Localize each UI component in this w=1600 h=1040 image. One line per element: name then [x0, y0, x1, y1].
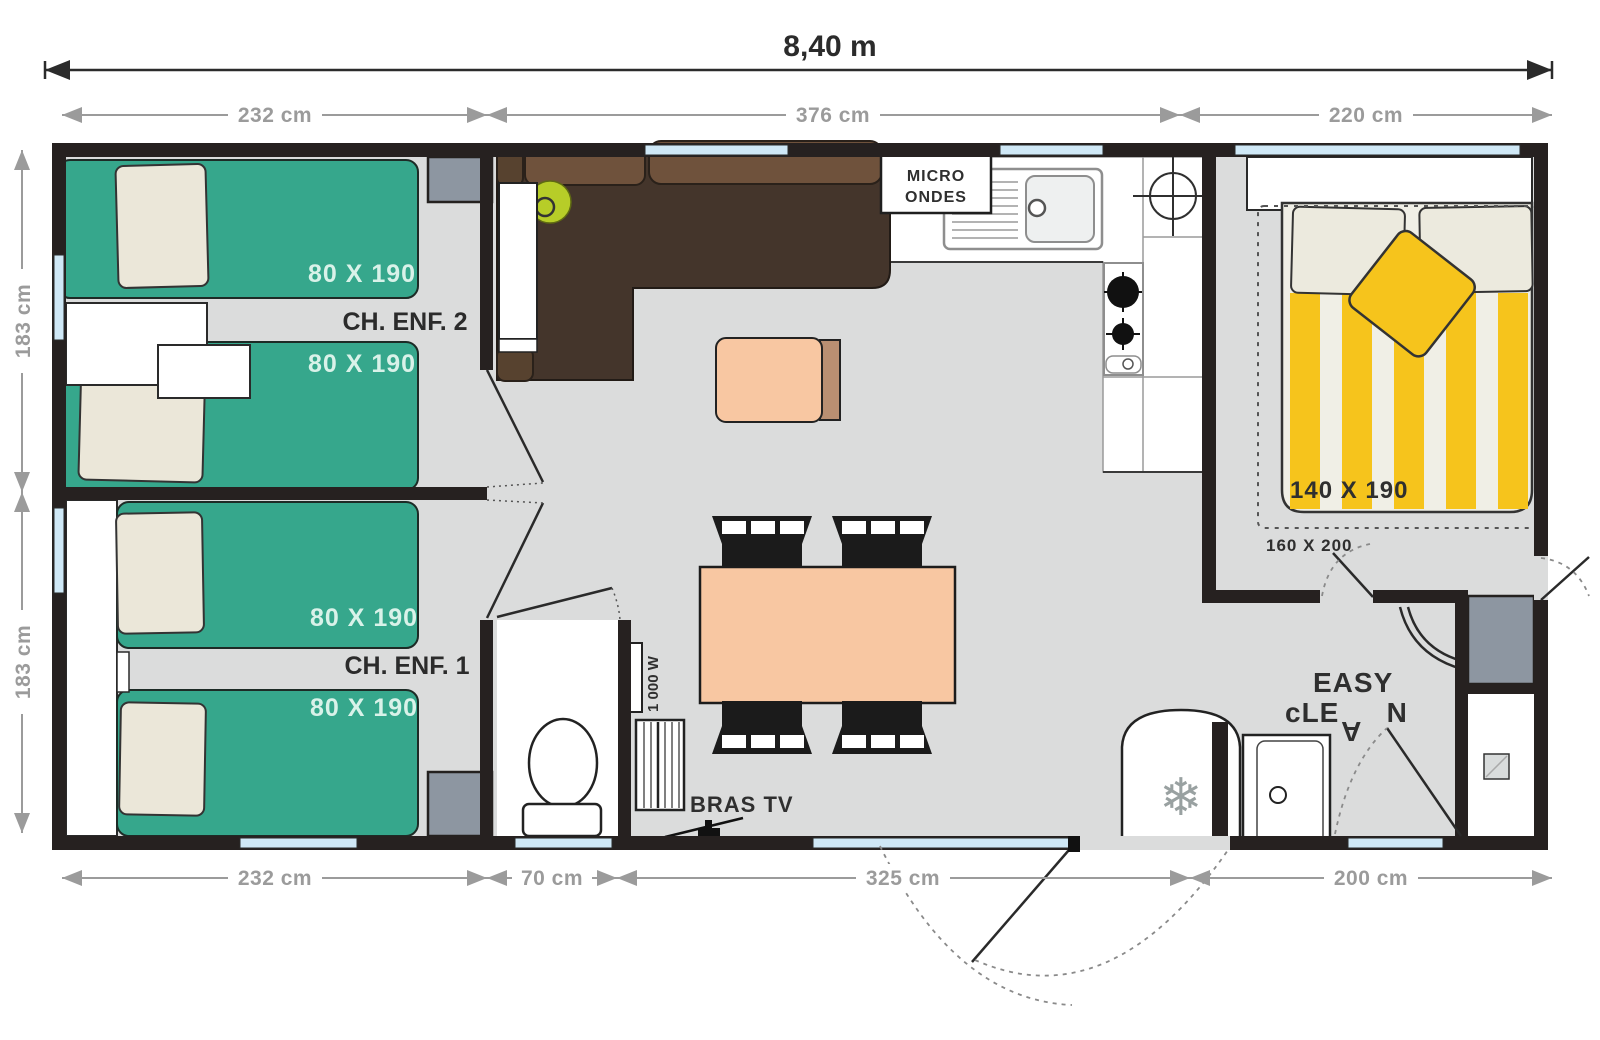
- wardrobe-edge: [1468, 684, 1534, 694]
- dimensions-left: 183 cm 183 cm: [7, 150, 37, 833]
- dim-top-2: 376 cm: [796, 104, 870, 127]
- bed-pillow: [116, 512, 204, 633]
- closet-strip: [66, 500, 117, 836]
- bed-size-label: 80 X 190: [310, 604, 418, 632]
- wc-room: [523, 719, 601, 836]
- dim-bottom-3: 325 cm: [866, 867, 940, 890]
- dimensions-bottom: 232 cm 70 cm 325 cm 200 cm: [62, 864, 1552, 892]
- sofa-armrest: [497, 348, 533, 381]
- dim-bottom-2: 70 cm: [521, 867, 583, 890]
- window: [1000, 145, 1103, 155]
- bed-pillow: [115, 164, 208, 288]
- room-label-child1: CH. ENF. 1: [344, 652, 469, 680]
- burner-large: [1107, 276, 1139, 308]
- dim-bottom-4: 200 cm: [1334, 867, 1408, 890]
- dining-table: [700, 567, 955, 703]
- dim-left-1: 183 cm: [12, 284, 35, 358]
- snowflake-icon: ❄: [1159, 768, 1203, 828]
- nightstand: [158, 345, 250, 398]
- window: [645, 145, 788, 155]
- microwave-label-box: MICRO ONDES: [881, 153, 991, 213]
- logo-line1: EASY: [1313, 667, 1393, 698]
- dimensions-top: 232 cm 376 cm 220 cm: [62, 101, 1552, 129]
- dim-bottom-1: 232 cm: [238, 867, 312, 890]
- dim-top-3: 220 cm: [1329, 104, 1403, 127]
- side-door-opening: [1534, 556, 1548, 600]
- water-heater-label: 1 000 W: [645, 655, 662, 712]
- entrance-hinge: [1068, 836, 1080, 852]
- dim-top-1: 232 cm: [238, 104, 312, 127]
- room-label-child2: CH. ENF. 2: [342, 308, 467, 336]
- microwave-label-line1: MICRO: [907, 168, 965, 185]
- floor-plan: 80 X 190 80 X 190 CH. ENF. 2 80 X 190 80…: [0, 0, 1600, 1040]
- master-bedroom: 140 X 190 160 X 200: [1247, 157, 1538, 555]
- window: [1348, 838, 1443, 848]
- dimension-overall: 8,40 m: [45, 26, 1552, 79]
- vanity-sink: [1243, 735, 1330, 848]
- hob: [1104, 263, 1143, 375]
- window: [240, 838, 357, 848]
- burner-small: [1112, 323, 1134, 345]
- door-leaf-side: [1541, 557, 1589, 600]
- bed-pillow: [119, 702, 206, 815]
- dim-left-2: 183 cm: [12, 625, 35, 699]
- entrance-opening: [1075, 836, 1230, 850]
- tall-cabinet-base: [499, 339, 537, 352]
- shower-drain: [1484, 754, 1509, 779]
- bed-zone-label: 160 X 200: [1266, 536, 1353, 555]
- floor-plan-page: 80 X 190 80 X 190 CH. ENF. 2 80 X 190 80…: [0, 0, 1600, 1040]
- faucet-icon: [1029, 200, 1045, 216]
- nightstand: [117, 652, 129, 692]
- armchair: [716, 338, 822, 422]
- tv-bracket-stem: [705, 820, 712, 830]
- toilet-tank: [523, 804, 601, 836]
- radiator: [636, 720, 684, 810]
- window: [54, 508, 64, 593]
- overall-width-label: 8,40 m: [783, 30, 876, 63]
- bed-size-label: 80 X 190: [310, 694, 418, 722]
- window: [54, 255, 64, 340]
- double-bed-label: 140 X 190: [1290, 477, 1408, 504]
- toilet-bowl: [529, 719, 597, 807]
- wardrobe: [1468, 596, 1534, 684]
- bed-size-label: 80 X 190: [308, 260, 416, 288]
- window: [515, 838, 612, 848]
- window: [1235, 145, 1520, 155]
- bed-size-label: 80 X 190: [308, 350, 416, 378]
- tall-cabinet: [499, 183, 537, 339]
- window: [813, 838, 1075, 848]
- tv-label: BRAS TV: [690, 792, 794, 817]
- door-leaf-entrance: [972, 843, 1075, 962]
- microwave-label-line2: ONDES: [905, 189, 967, 206]
